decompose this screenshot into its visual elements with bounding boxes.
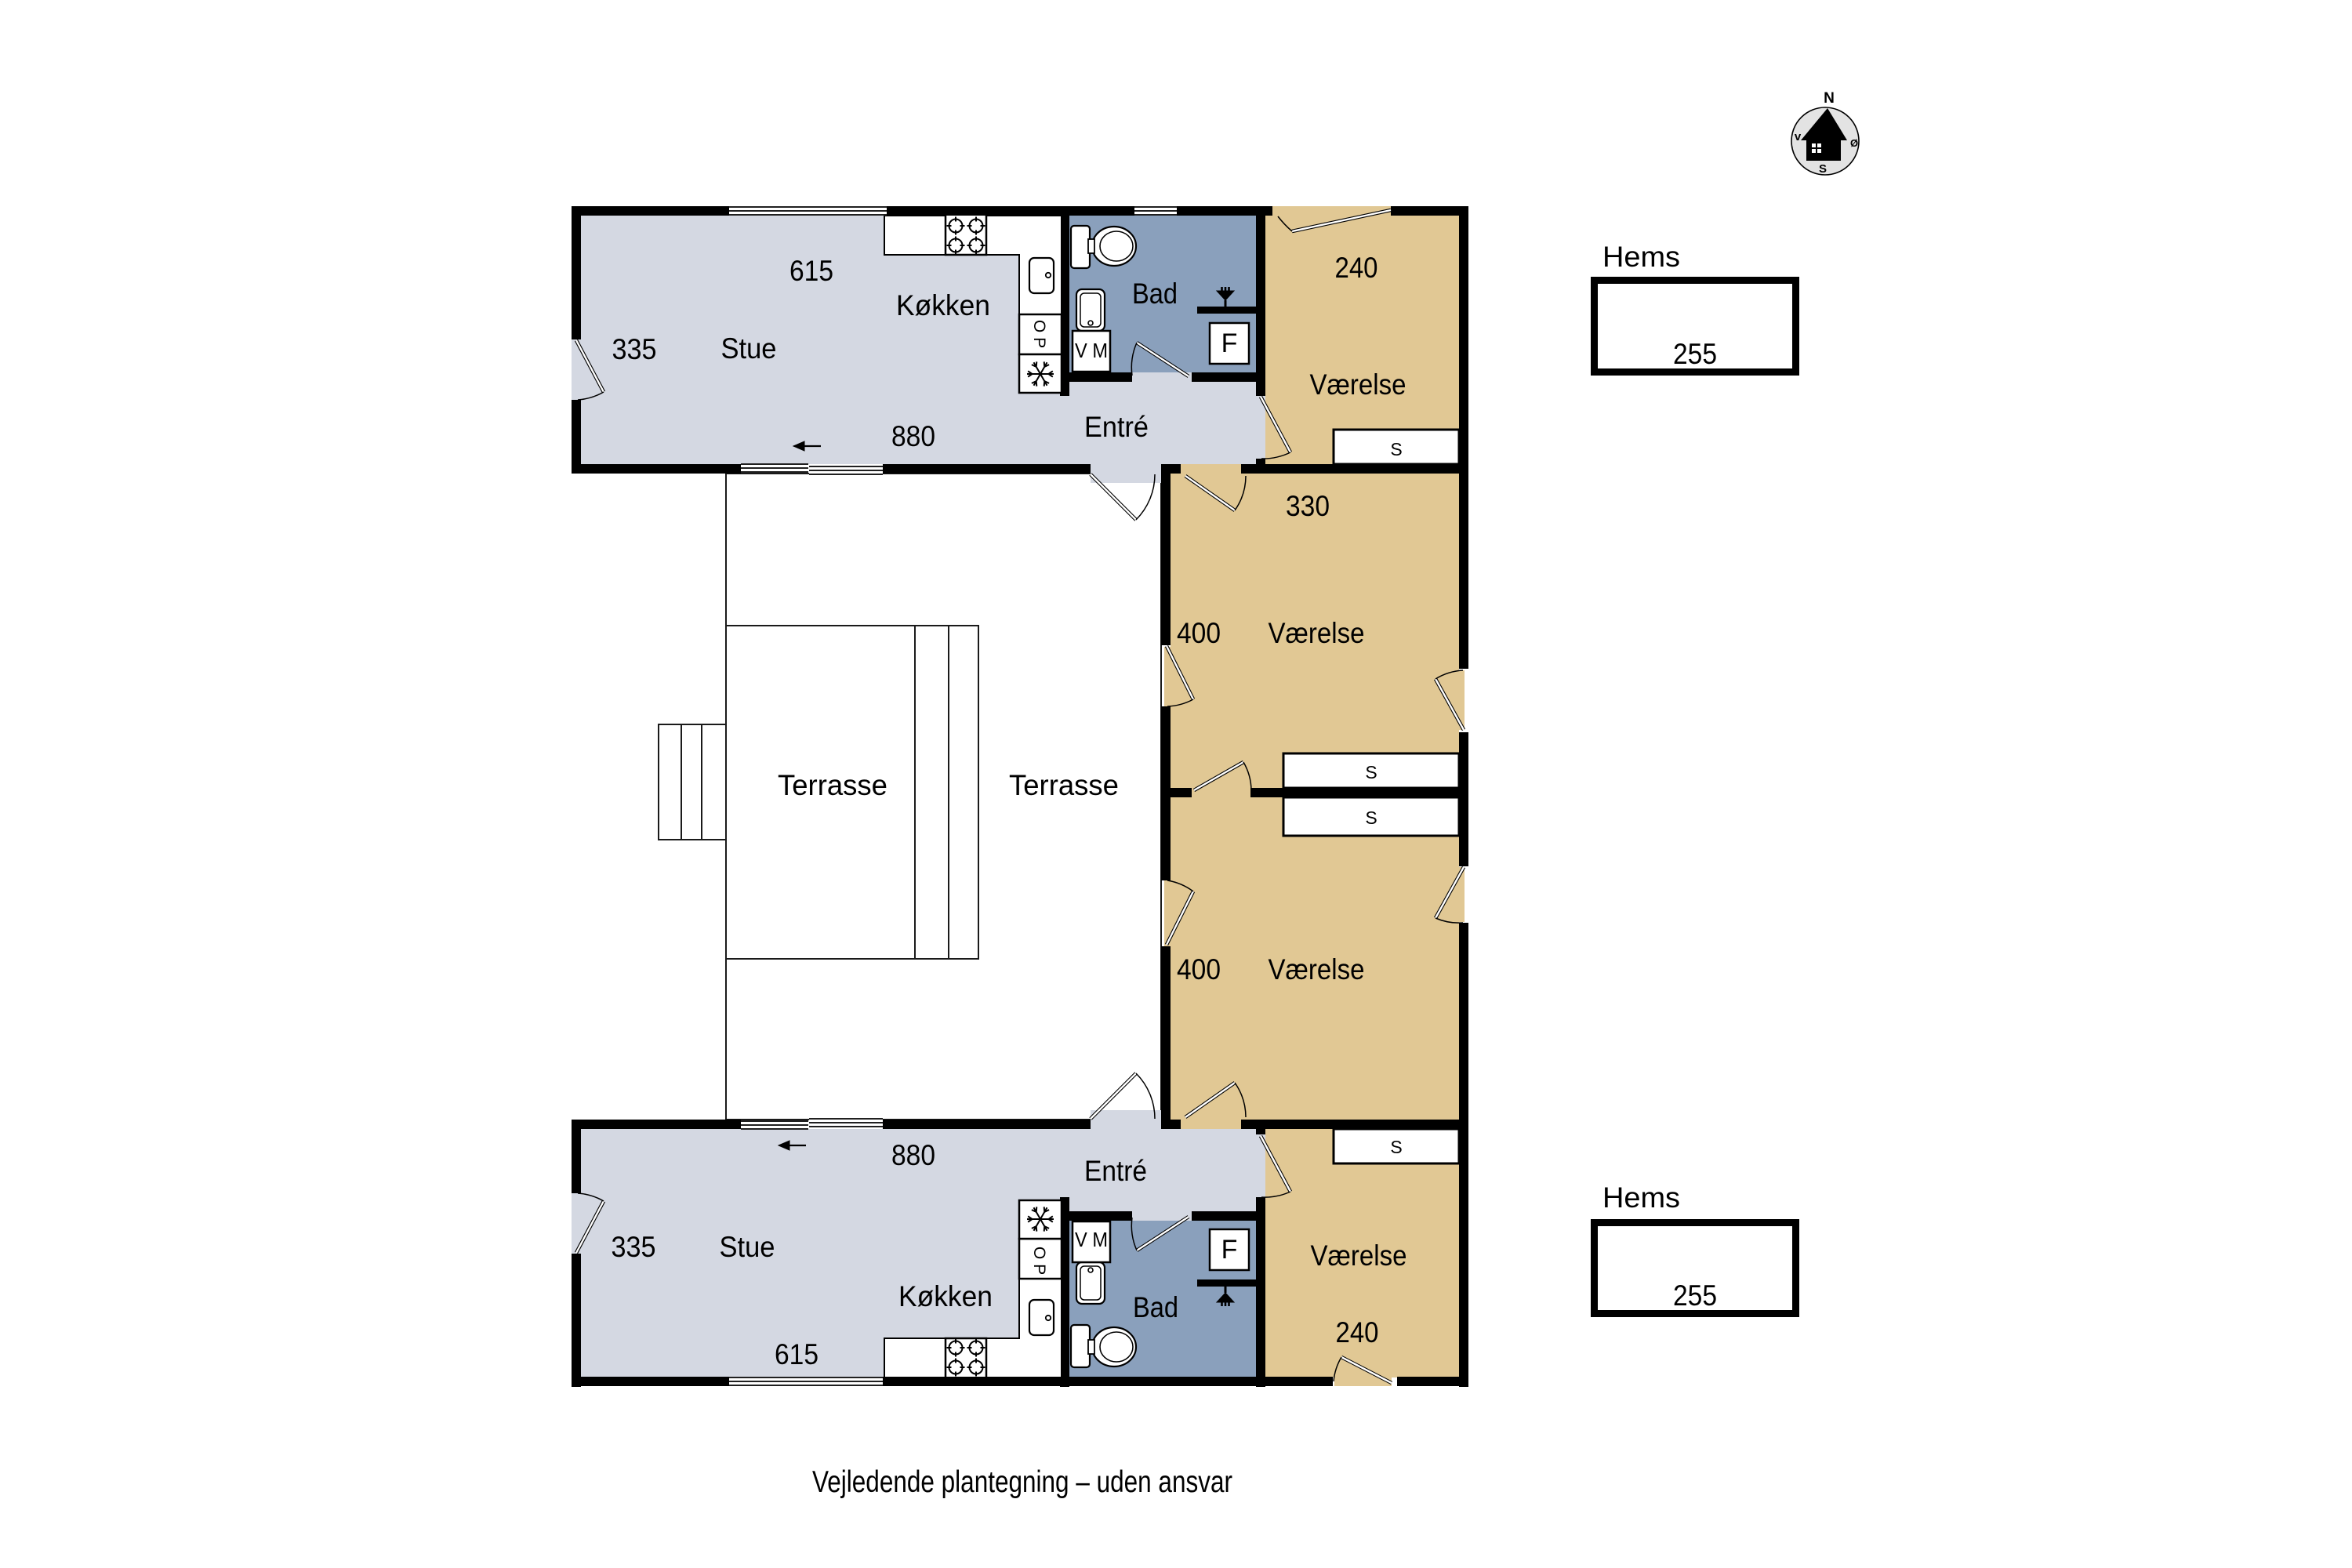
svg-text:Værelse: Værelse [1269,953,1365,985]
svg-text:S: S [1390,1137,1402,1157]
svg-text:Entré: Entré [1084,411,1149,443]
svg-text:Værelse: Værelse [1311,1240,1407,1272]
svg-text:Bad: Bad [1132,278,1178,310]
svg-text:Hems: Hems [1602,1181,1680,1214]
svg-text:F: F [1221,328,1238,358]
svg-text:615: 615 [775,1338,818,1370]
svg-text:Ø: Ø [1850,137,1858,149]
svg-text:330: 330 [1286,490,1330,522]
svg-text:Terrasse: Terrasse [1009,769,1119,801]
svg-text:Køkken: Køkken [898,1280,993,1312]
svg-text:S: S [1365,808,1377,828]
svg-text:S: S [1390,439,1402,459]
svg-text:F: F [1221,1235,1238,1265]
svg-text:Vejledende plantegning – uden: Vejledende plantegning – uden ansvar [812,1465,1232,1499]
svg-text:Stue: Stue [720,1231,775,1263]
svg-text:400: 400 [1177,617,1221,649]
svg-text:400: 400 [1177,953,1221,985]
svg-text:v: v [1795,130,1802,143]
svg-text:Værelse: Værelse [1310,368,1406,401]
svg-text:335: 335 [612,333,657,365]
svg-text:N: N [1824,90,1835,107]
svg-text:Bad: Bad [1133,1291,1178,1323]
svg-text:O P: O P [1030,1247,1048,1275]
svg-text:255: 255 [1673,338,1717,370]
svg-text:880: 880 [891,420,935,452]
svg-text:615: 615 [789,255,833,287]
svg-text:S: S [1819,162,1827,176]
svg-text:880: 880 [891,1139,935,1171]
svg-text:O P: O P [1030,320,1048,348]
svg-text:Stue: Stue [721,332,777,365]
svg-text:V M: V M [1075,339,1108,362]
svg-text:V M: V M [1075,1228,1108,1251]
svg-text:Værelse: Værelse [1269,617,1365,649]
svg-text:Entré: Entré [1084,1155,1147,1187]
svg-text:Terrasse: Terrasse [778,769,887,801]
svg-text:Køkken: Køkken [896,289,990,321]
svg-text:S: S [1365,762,1377,782]
svg-text:240: 240 [1335,252,1378,284]
svg-text:335: 335 [612,1231,656,1263]
svg-text:Hems: Hems [1602,241,1680,273]
svg-text:240: 240 [1336,1316,1379,1348]
svg-text:255: 255 [1673,1279,1717,1312]
